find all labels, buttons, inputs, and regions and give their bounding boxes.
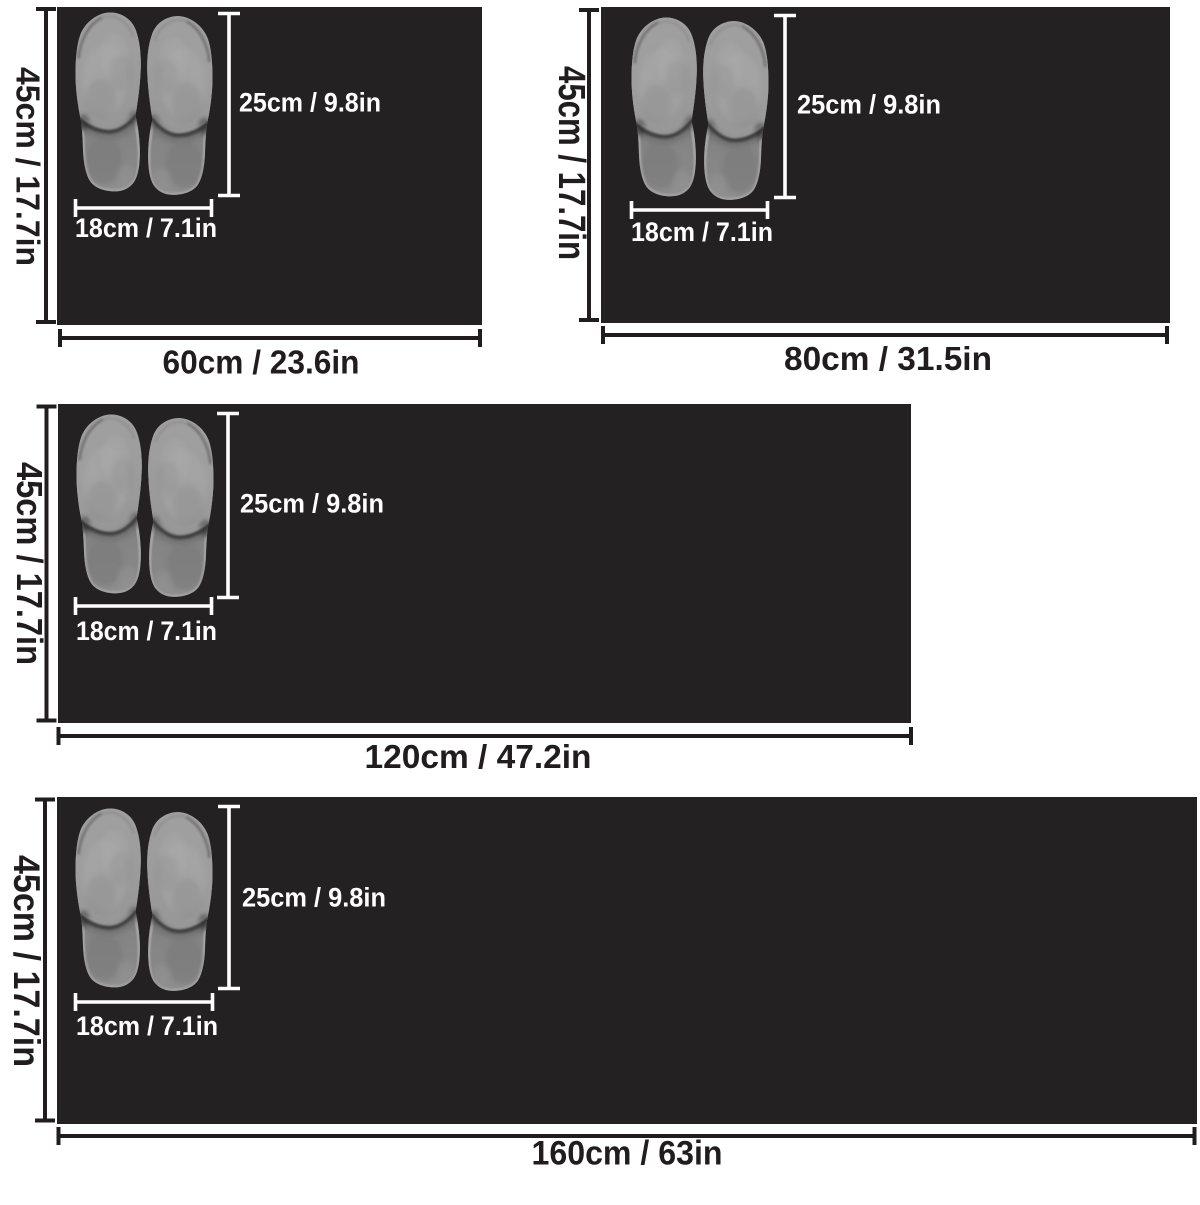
svg-text:25cm / 9.8in: 25cm / 9.8in: [242, 883, 386, 913]
svg-text:18cm / 7.1in: 18cm / 7.1in: [75, 213, 217, 243]
svg-text:45cm / 17.7in: 45cm / 17.7in: [6, 855, 47, 1067]
svg-text:160cm / 63in: 160cm / 63in: [532, 1135, 723, 1173]
svg-text:60cm / 23.6in: 60cm / 23.6in: [163, 344, 360, 381]
svg-text:25cm / 9.8in: 25cm / 9.8in: [240, 489, 384, 519]
svg-text:45cm / 17.7in: 45cm / 17.7in: [9, 462, 50, 665]
svg-text:18cm / 7.1in: 18cm / 7.1in: [76, 1011, 218, 1041]
svg-text:45cm / 17.7in: 45cm / 17.7in: [550, 66, 592, 260]
svg-text:80cm / 31.5in: 80cm / 31.5in: [784, 340, 992, 377]
svg-text:25cm / 9.8in: 25cm / 9.8in: [239, 88, 381, 118]
svg-text:18cm / 7.1in: 18cm / 7.1in: [76, 616, 217, 646]
svg-text:25cm / 9.8in: 25cm / 9.8in: [797, 90, 941, 120]
svg-text:120cm / 47.2in: 120cm / 47.2in: [365, 738, 592, 775]
svg-text:45cm / 17.7in: 45cm / 17.7in: [10, 67, 47, 266]
svg-text:18cm / 7.1in: 18cm / 7.1in: [631, 217, 773, 247]
